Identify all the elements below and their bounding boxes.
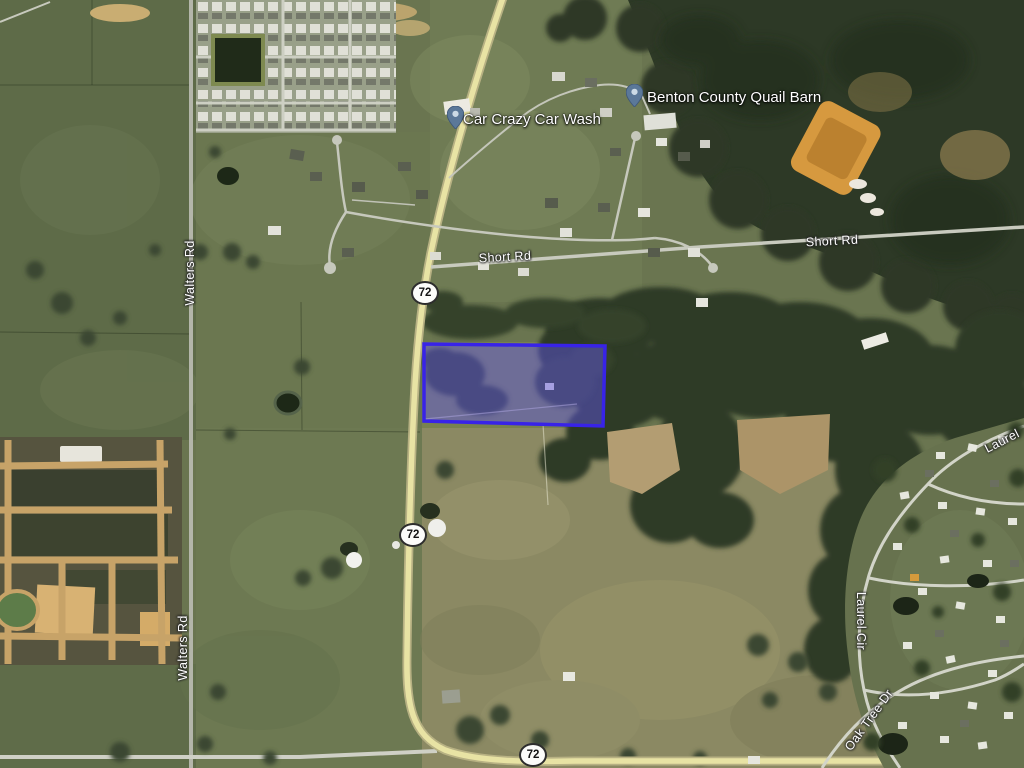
laurel-cir-label: Laurel Cir	[854, 592, 868, 650]
highway-72-shield-bottom: 72	[519, 743, 547, 767]
map-pin-icon	[626, 84, 643, 107]
map-pin-icon	[447, 106, 464, 129]
walters-rd-label-south: Walters Rd	[176, 615, 190, 680]
highway-72-shield-top: 72	[411, 281, 439, 305]
walters-rd-label-north: Walters Rd	[183, 240, 197, 305]
short-rd-label-east: Short Rd	[805, 233, 858, 250]
poi-pin-benton-county-quail-barn[interactable]	[626, 84, 643, 107]
poi-label-benton-county-quail-barn[interactable]: Benton County Quail Barn	[647, 89, 821, 106]
highway-72-shield-middle: 72	[399, 523, 427, 547]
poi-pin-car-crazy-car-wash[interactable]	[447, 106, 464, 129]
short-rd-label-west: Short Rd	[478, 249, 531, 266]
poi-label-car-crazy-car-wash[interactable]: Car Crazy Car Wash	[463, 111, 601, 128]
satellite-map[interactable]: Walters Rd Walters Rd Short Rd Short Rd …	[0, 0, 1024, 768]
parcel-highlight[interactable]	[424, 344, 605, 426]
